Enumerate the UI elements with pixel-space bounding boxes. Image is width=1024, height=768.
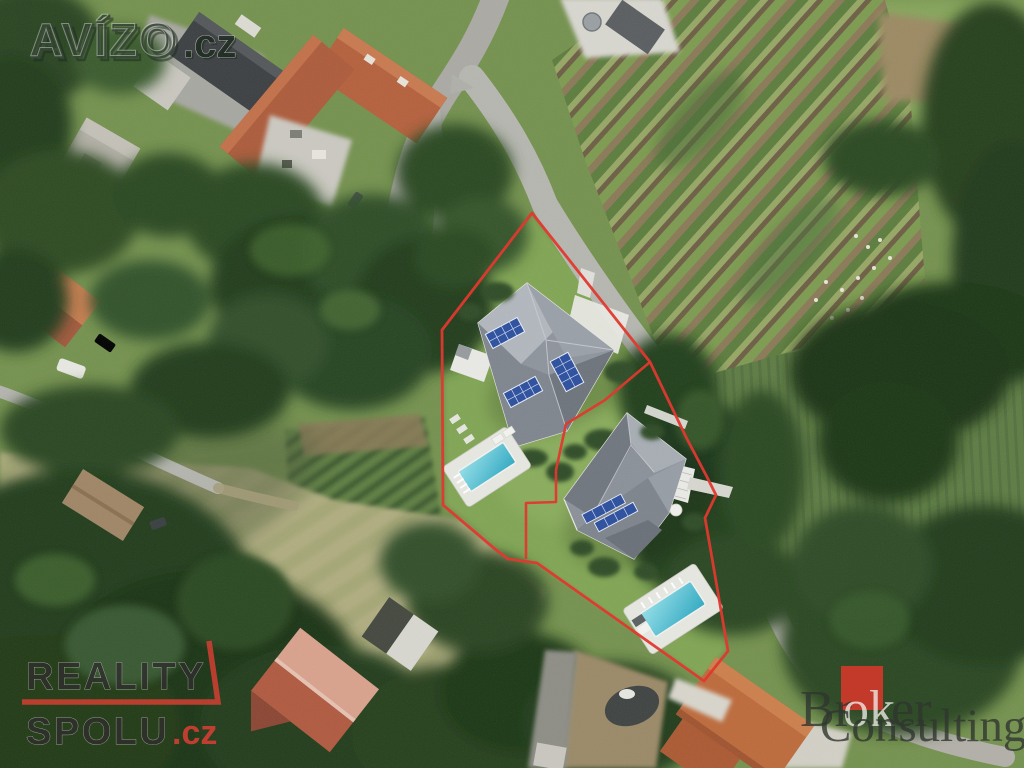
reality-spolu-tld: .cz: [172, 714, 217, 752]
aerial-photo-listing: AVÍZO AVÍZO AVÍZO .cz .cz REALITY SPOLU …: [0, 0, 1024, 768]
avizo-watermark: AVÍZO AVÍZO AVÍZO .cz .cz: [30, 14, 239, 71]
avizo-tld: .cz: [183, 22, 236, 66]
avizo-brand-highlight: AVÍZO: [30, 14, 177, 66]
spolu-text: SPOLU: [26, 711, 169, 753]
reality-text: REALITY: [26, 656, 206, 698]
consulting-word: Consulting: [820, 700, 1024, 752]
photo-grain: [0, 0, 1024, 768]
aerial-photo: AVÍZO AVÍZO AVÍZO .cz .cz REALITY SPOLU …: [0, 0, 1024, 768]
reality-spolu-watermark: REALITY SPOLU .cz: [22, 641, 218, 753]
